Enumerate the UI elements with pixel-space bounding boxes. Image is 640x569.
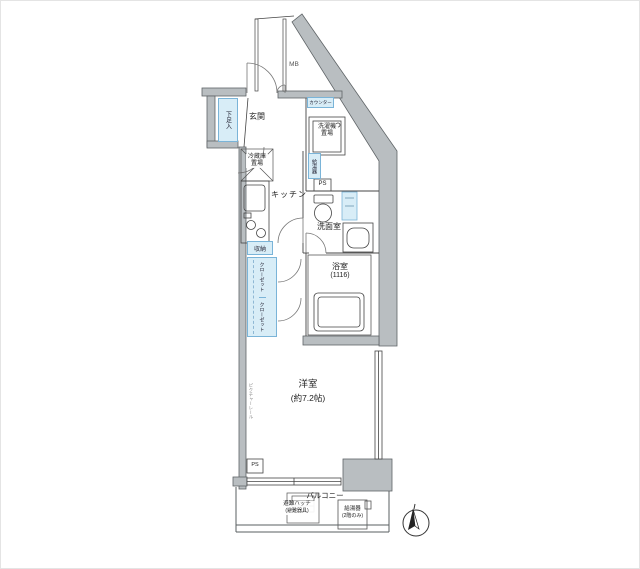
bathroom-size-label: (1116) [318, 272, 362, 281]
compass-icon [403, 504, 429, 536]
storage-box: 収納 [247, 241, 273, 255]
balcony-water-heater-label-group: 給湯器 (2階のみ) [339, 506, 366, 520]
closet-lower-label: クローゼット [259, 298, 266, 337]
genkan-label: 玄関 [242, 112, 272, 122]
evacuation-hatch-label-group: 避難ハッチ (避難器具) [278, 501, 316, 515]
western-room-size-label: (約7.2帖) [268, 392, 348, 405]
washer-space-label: 洗濯機置場 [316, 124, 338, 138]
pipe-space-label: PS [314, 181, 331, 189]
balcony-label: バルコニー [304, 491, 346, 500]
burner-icon [257, 229, 266, 238]
shoe-cabinet: 下足入 [218, 98, 238, 142]
hanger-pipe [253, 260, 254, 334]
sink-icon [244, 185, 265, 211]
water-heater-box: 給湯器 [308, 153, 321, 179]
meter-box-label: MB [283, 61, 305, 69]
picture-rail-label: ピクチャーレール [247, 367, 255, 435]
western-room-label: 洋室 [268, 378, 348, 392]
closet-upper-label: クローゼット [259, 258, 266, 298]
washroom-label: 洗面室 [307, 222, 351, 232]
toilet-symbol [314, 195, 333, 222]
walls [202, 14, 397, 491]
balcony-water-heater-note: (2階のみ) [339, 513, 366, 520]
refrigerator-space-label: 冷蔵庫置場 [246, 154, 268, 168]
bathroom-label: 浴室 [318, 262, 362, 272]
western-room-label-group: 洋室 (約7.2帖) [268, 378, 348, 405]
burner-icon [247, 221, 256, 230]
kitchen-label: キッチン [267, 190, 311, 200]
pipe-space-2-label: PS [247, 462, 263, 469]
floorplan-page: 下足入 カウンター 給湯器 収納 クローゼット クローゼット MB 玄関 冷蔵庫… [0, 0, 640, 569]
closet: クローゼット クローゼット [247, 257, 277, 337]
evacuation-hatch-note: (避難器具) [278, 508, 316, 515]
floorplan-drawing [1, 1, 640, 569]
counter-box: カウンター [307, 97, 334, 108]
bathroom-label-group: 浴室 (1116) [318, 262, 362, 281]
